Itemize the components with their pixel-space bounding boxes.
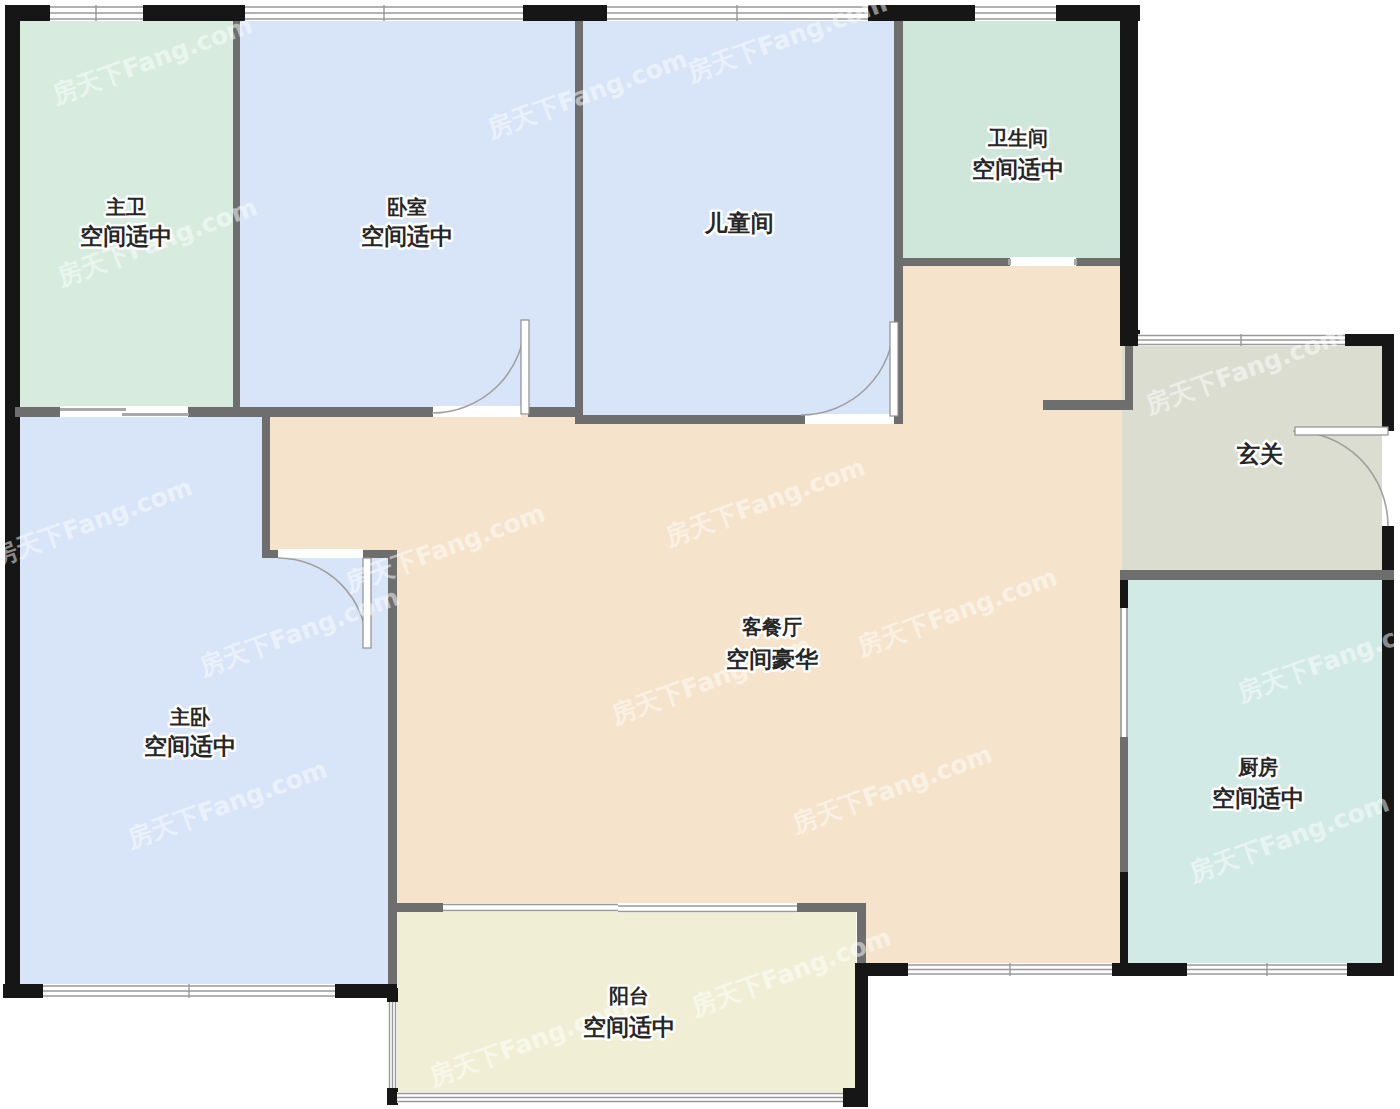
wall-cap — [387, 988, 398, 1002]
opening-cap — [1074, 259, 1077, 265]
label-bathroom-subtitle: 空间适中 — [972, 156, 1064, 182]
label-kitchen-subtitle: 空间适中 — [1212, 785, 1304, 811]
wall-cap — [843, 1088, 866, 1107]
wall-foyer-right — [1382, 334, 1394, 431]
wall-segment — [894, 258, 1010, 266]
label-living-dining-subtitle: 空间豪华 — [726, 646, 819, 672]
opening-edge — [1126, 608, 1128, 737]
wall-foyer-kitchen — [1120, 570, 1394, 580]
door-gap — [1010, 257, 1076, 266]
label-bedroom-name: 卧室 — [387, 195, 427, 219]
wall-segment — [262, 550, 278, 558]
wall-segment — [1120, 737, 1128, 872]
label-bedroom-subtitle: 空间适中 — [361, 223, 453, 249]
wall-right-upper — [1120, 5, 1138, 346]
door-leaf-kids-room — [890, 322, 898, 416]
wall-balcony-right — [855, 963, 868, 1107]
label-master-bedroom-subtitle: 空间适中 — [144, 733, 236, 759]
wall-segment — [397, 903, 443, 912]
wall-segment — [388, 550, 397, 984]
floor-plan-svg: 房天下Fang.com 房天下Fang.com 房天下Fang.com 房天下F… — [0, 0, 1400, 1109]
wall-segment — [528, 407, 583, 417]
wall-segment — [3, 984, 43, 998]
wall-corner — [1345, 334, 1394, 346]
room-fills — [20, 21, 1382, 1093]
door-gap — [278, 549, 363, 558]
door-leaf-entry — [1295, 427, 1388, 435]
label-bathroom-name: 卫生间 — [987, 126, 1048, 150]
wall-segment — [797, 903, 863, 912]
door-leaf-bedroom — [521, 320, 529, 414]
wall-segment — [575, 415, 805, 424]
label-master-bath-subtitle: 空间适中 — [80, 223, 172, 249]
label-balcony-name: 阳台 — [609, 984, 649, 1008]
wall-kitchen-left — [1120, 578, 1128, 608]
label-master-bedroom-name: 主卧 — [169, 705, 211, 729]
wall-segment — [523, 5, 607, 21]
wall-left — [5, 5, 20, 998]
opening-edge — [1120, 608, 1122, 737]
wall-kitchen-left — [1120, 872, 1128, 963]
wall-segment — [188, 407, 433, 417]
wall-segment — [15, 407, 60, 417]
door-gap — [805, 414, 894, 424]
wall-corner — [1122, 330, 1140, 346]
label-living-dining-name: 客餐厅 — [741, 615, 802, 639]
floor-plan: 房天下Fang.com 房天下Fang.com 房天下Fang.com 房天下F… — [0, 0, 1400, 1109]
label-foyer-name: 玄关 — [1236, 441, 1283, 467]
label-master-bath-name: 主卫 — [105, 195, 146, 219]
sliding-door-panel — [122, 413, 189, 416]
wall-segment — [262, 417, 270, 558]
wall-cap — [387, 1088, 398, 1105]
label-kitchen-name: 厨房 — [1237, 755, 1278, 779]
opening-cap — [1008, 259, 1011, 265]
wall-segment — [1112, 963, 1187, 976]
sliding-door-panel — [60, 408, 126, 411]
label-kids-room-name: 儿童间 — [704, 210, 774, 236]
wall-segment — [1076, 258, 1120, 266]
label-balcony-subtitle: 空间适中 — [583, 1014, 675, 1040]
wall-segment — [1043, 400, 1133, 410]
